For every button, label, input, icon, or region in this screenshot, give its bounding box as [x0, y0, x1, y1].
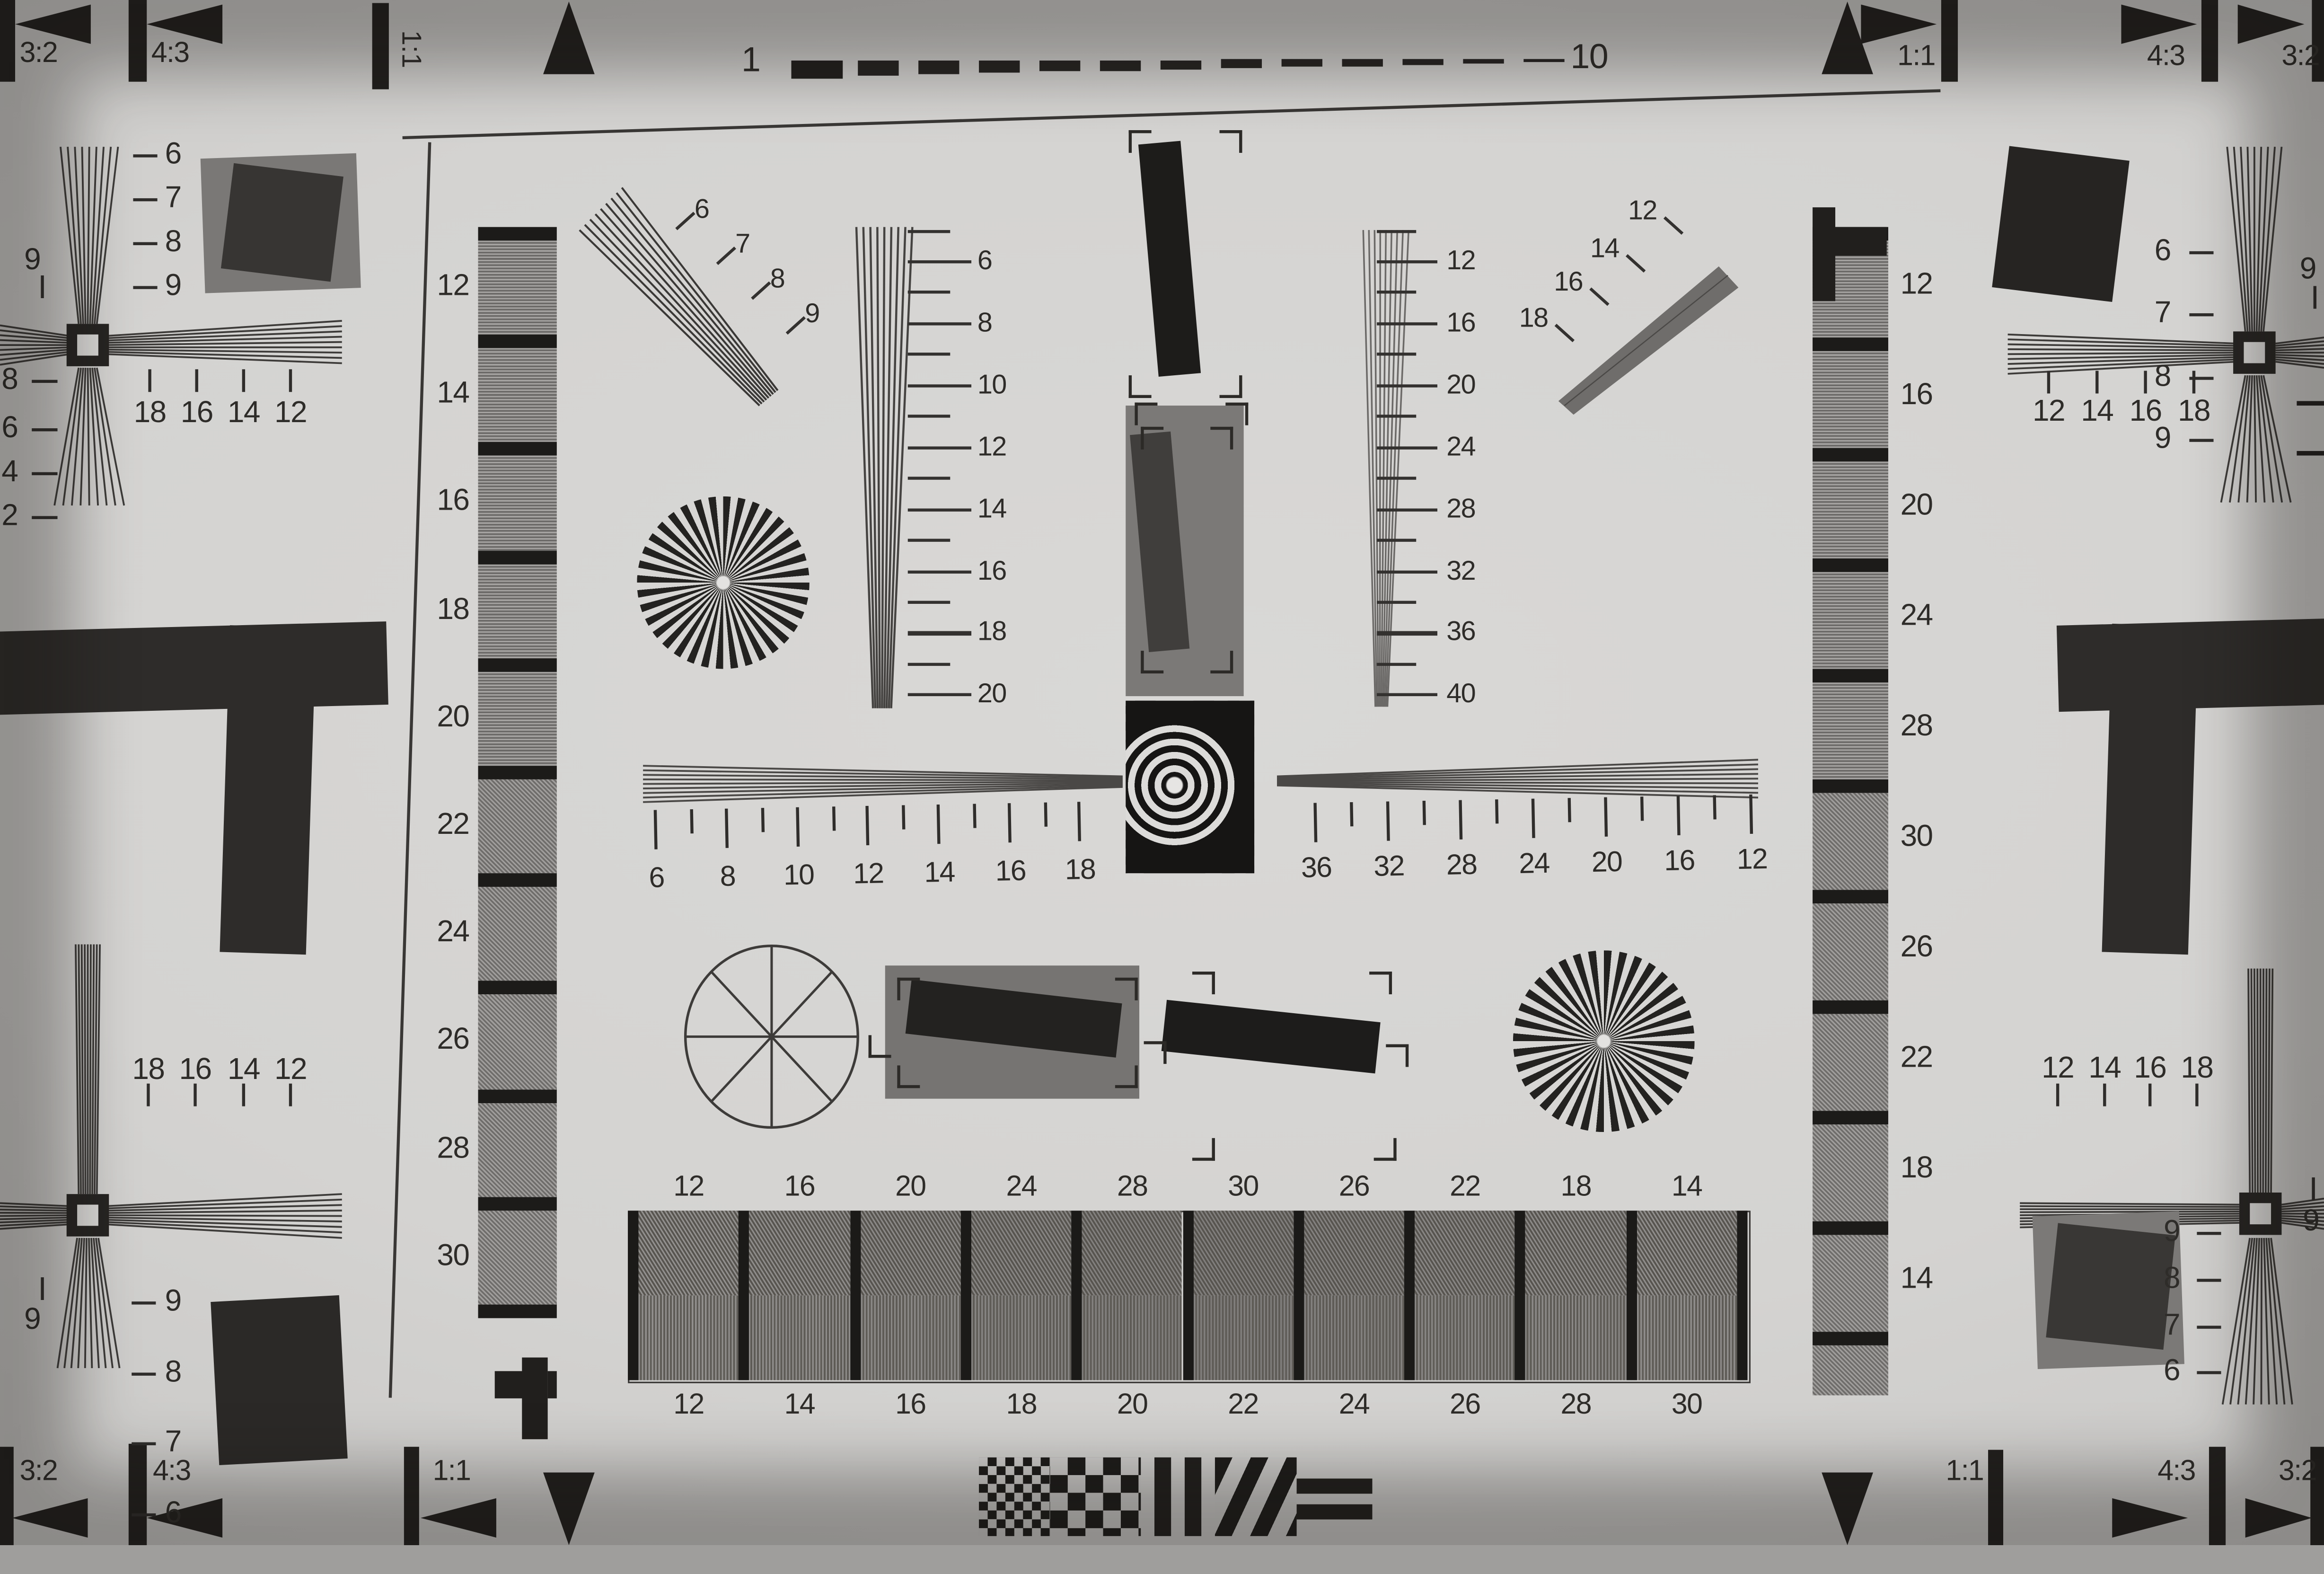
tablet-top-label: 26 [1330, 1173, 1378, 1202]
tablet-bottom-label: 24 [1330, 1391, 1378, 1420]
h-right-tick-long [1749, 795, 1753, 834]
tl-diag-number: 8 [770, 265, 784, 292]
h-right-number: 20 [1585, 849, 1629, 878]
bl_tickrow-number: 14 [222, 1055, 265, 1085]
tr_tickrow-number: 18 [2173, 397, 2215, 427]
h-right-number: 32 [1367, 852, 1410, 882]
tablet-top-label: 28 [1108, 1173, 1156, 1202]
h-right-tick-long [1604, 797, 1608, 837]
tablet-top-label: 20 [886, 1173, 934, 1202]
h-right-tick-short [1713, 795, 1716, 819]
tr_tickrow-tick [2095, 371, 2099, 393]
left-edge-cut-dash [32, 380, 57, 384]
tr_tickrow-tick [2192, 371, 2196, 393]
tablet-bottom-label: 22 [1219, 1391, 1267, 1420]
h-right-tick-short [1495, 799, 1498, 823]
bl_tickrow-number: 12 [269, 1055, 312, 1085]
h-right-tick-long [1386, 802, 1391, 841]
tablet-bottom-label: 12 [664, 1391, 713, 1420]
tr_edge_wedge-dash [2189, 313, 2213, 317]
br_tickrow-tick [2148, 1084, 2152, 1106]
tablet-top-label: 14 [1663, 1173, 1711, 1202]
tr_edge_wedge-number: 8 [2155, 362, 2171, 392]
h-right-tick-short [1567, 798, 1571, 822]
left-edge-cut-dash [32, 428, 57, 432]
tl-diag-number: 7 [735, 230, 749, 257]
h-right-tick-long [1677, 796, 1681, 835]
bl-32-bar [0, 1447, 14, 1545]
h-right-tick-short [1640, 796, 1644, 821]
tr-edge-nine: 9 [2300, 254, 2316, 284]
bl_tickrow-number: 16 [174, 1055, 217, 1085]
tr_edge_wedge-dash [2189, 377, 2213, 380]
h-right-number: 16 [1658, 847, 1701, 876]
tablet-bottom-label: 18 [997, 1391, 1046, 1420]
br_tickrow-number: 12 [2036, 1053, 2079, 1084]
bl_edge_wedge-number: 8 [165, 1358, 181, 1388]
br-edge-nine: 9 [2303, 1206, 2319, 1237]
tl_tickrow-number: 14 [222, 398, 265, 428]
tl_tickrow-tick [195, 369, 199, 392]
br_edge_wedge-number: 7 [2164, 1310, 2180, 1341]
left-edge-cut-number: 8 [1, 365, 18, 395]
left-edge-cut-number: 4 [1, 457, 18, 487]
tr_edge_wedge-number: 6 [2155, 236, 2171, 266]
br_edge_wedge-dash [2197, 1326, 2221, 1329]
bl_tickrow-tick [147, 1084, 150, 1106]
tr_tickrow-number: 12 [2027, 397, 2070, 427]
bl_edge_wedge-number: 6 [165, 1498, 181, 1529]
tr-diag-number: 18 [1519, 304, 1548, 332]
bl_tickrow-tick [242, 1084, 246, 1106]
tl_edge_wedge-number: 6 [165, 139, 181, 169]
tl_edge_wedge-number: 9 [165, 271, 181, 301]
h-right-number: 12 [1731, 846, 1774, 875]
tr_edge_wedge-number: 7 [2155, 298, 2171, 328]
tr_edge_wedge-dash [2189, 251, 2213, 255]
tablet-bottom-label: 14 [775, 1391, 824, 1420]
bl_edge_wedge-dash [132, 1513, 156, 1517]
tablet-bottom-label: 16 [886, 1391, 934, 1420]
tablet-bottom-label: 28 [1552, 1391, 1600, 1420]
bl_edge_wedge-number: 7 [165, 1427, 181, 1458]
tl_edge_wedge-dash [133, 154, 157, 158]
br_tickrow-number: 16 [2129, 1053, 2171, 1084]
tablet-bottom-label: 20 [1108, 1391, 1156, 1420]
left-edge-cut-number: 6 [1, 413, 18, 443]
tl_tickrow-tick [148, 369, 152, 392]
h-right-number: 28 [1440, 851, 1483, 880]
br_tickrow-tick [2103, 1084, 2107, 1106]
tl-edge-nine-tick [41, 275, 44, 298]
tablet-top-label: 22 [1441, 1173, 1489, 1202]
h-right-tick-short [1350, 802, 1353, 826]
bl_edge_wedge-dash [132, 1372, 156, 1376]
tablet-bottom-label: 26 [1441, 1391, 1489, 1420]
tl-diag-number: 9 [805, 300, 819, 327]
br_edge_wedge-dash [2197, 1232, 2221, 1236]
br_tickrow-number: 18 [2176, 1053, 2218, 1084]
bl-edge-nine: 9 [24, 1305, 40, 1335]
tl_edge_wedge-number: 7 [165, 183, 181, 213]
left-edge-cut-number: 2 [1, 501, 18, 531]
tablet-top-label: 16 [775, 1173, 824, 1202]
tr_tickrow-tick [2144, 371, 2148, 393]
tl_edge_wedge-dash [133, 242, 157, 246]
bl_tickrow-number: 18 [127, 1055, 170, 1085]
tr_tickrow-number: 14 [2076, 397, 2119, 427]
tablet-top-label: 30 [1219, 1173, 1267, 1202]
br_tickrow-number: 14 [2084, 1053, 2126, 1084]
h-scale-right: 36322824201612 [0, 0, 2324, 1574]
h-right-tick-short [1423, 801, 1426, 825]
tr_edge_wedge-dash [2189, 439, 2213, 442]
tl_tickrow-number: 18 [129, 398, 171, 428]
tablet-bottom-label: 30 [1663, 1391, 1711, 1420]
bl_edge_wedge-dash [132, 1301, 156, 1305]
bl_edge_wedge-dash [132, 1442, 156, 1446]
bl-edge-nine-tick [41, 1277, 44, 1300]
tr_tickrow-tick [2047, 371, 2051, 393]
br_edge_wedge-number: 8 [2164, 1264, 2180, 1294]
tr-diag-number: 14 [1590, 235, 1619, 262]
tl_tickrow-tick [242, 369, 246, 392]
bl_tickrow-tick [194, 1084, 197, 1106]
tl_tickrow-number: 16 [176, 398, 218, 428]
br_edge_wedge-dash [2197, 1371, 2221, 1375]
tr-edge-nine-tick [2314, 286, 2317, 309]
tr-diag-number: 12 [1628, 197, 1657, 224]
br_tickrow-tick [2056, 1084, 2060, 1106]
tr-diag-number: 16 [1554, 268, 1583, 295]
iso12233-test-chart-photo: 3:2 4:3 1:1 1 10 1:1 4:3 3:2 3:2 4:3 1:1… [0, 0, 2324, 1545]
left-edge-cut-dash [32, 516, 57, 520]
h-right-number: 24 [1513, 850, 1556, 879]
tl_tickrow-number: 12 [269, 398, 312, 428]
h-right-tick-long [1313, 803, 1318, 842]
h-right-number: 36 [1295, 854, 1338, 883]
br_tickrow-tick [2195, 1084, 2199, 1106]
tl_tickrow-tick [289, 369, 293, 392]
h-right-tick-long [1532, 799, 1536, 838]
bl_tickrow-tick [289, 1084, 293, 1106]
tl-edge-nine: 9 [24, 245, 40, 275]
tablet-top-label: 18 [1552, 1173, 1600, 1202]
tablet-top-label: 24 [997, 1173, 1046, 1202]
tablet-top-label: 12 [664, 1173, 713, 1202]
left-edge-cut-dash [32, 472, 57, 476]
br_edge_wedge-number: 6 [2164, 1356, 2180, 1386]
tl_edge_wedge-number: 8 [165, 227, 181, 257]
tr_edge_wedge-number: 9 [2155, 424, 2171, 454]
tl_edge_wedge-dash [133, 198, 157, 202]
tl-diag-number: 6 [695, 195, 709, 223]
br_edge_wedge-number: 9 [2164, 1217, 2180, 1247]
h-right-tick-long [1459, 800, 1463, 840]
tl_edge_wedge-dash [133, 286, 157, 290]
bl_edge_wedge-number: 9 [165, 1286, 181, 1317]
br-edge-nine-tick [2312, 1177, 2315, 1200]
br_edge_wedge-dash [2197, 1279, 2221, 1282]
